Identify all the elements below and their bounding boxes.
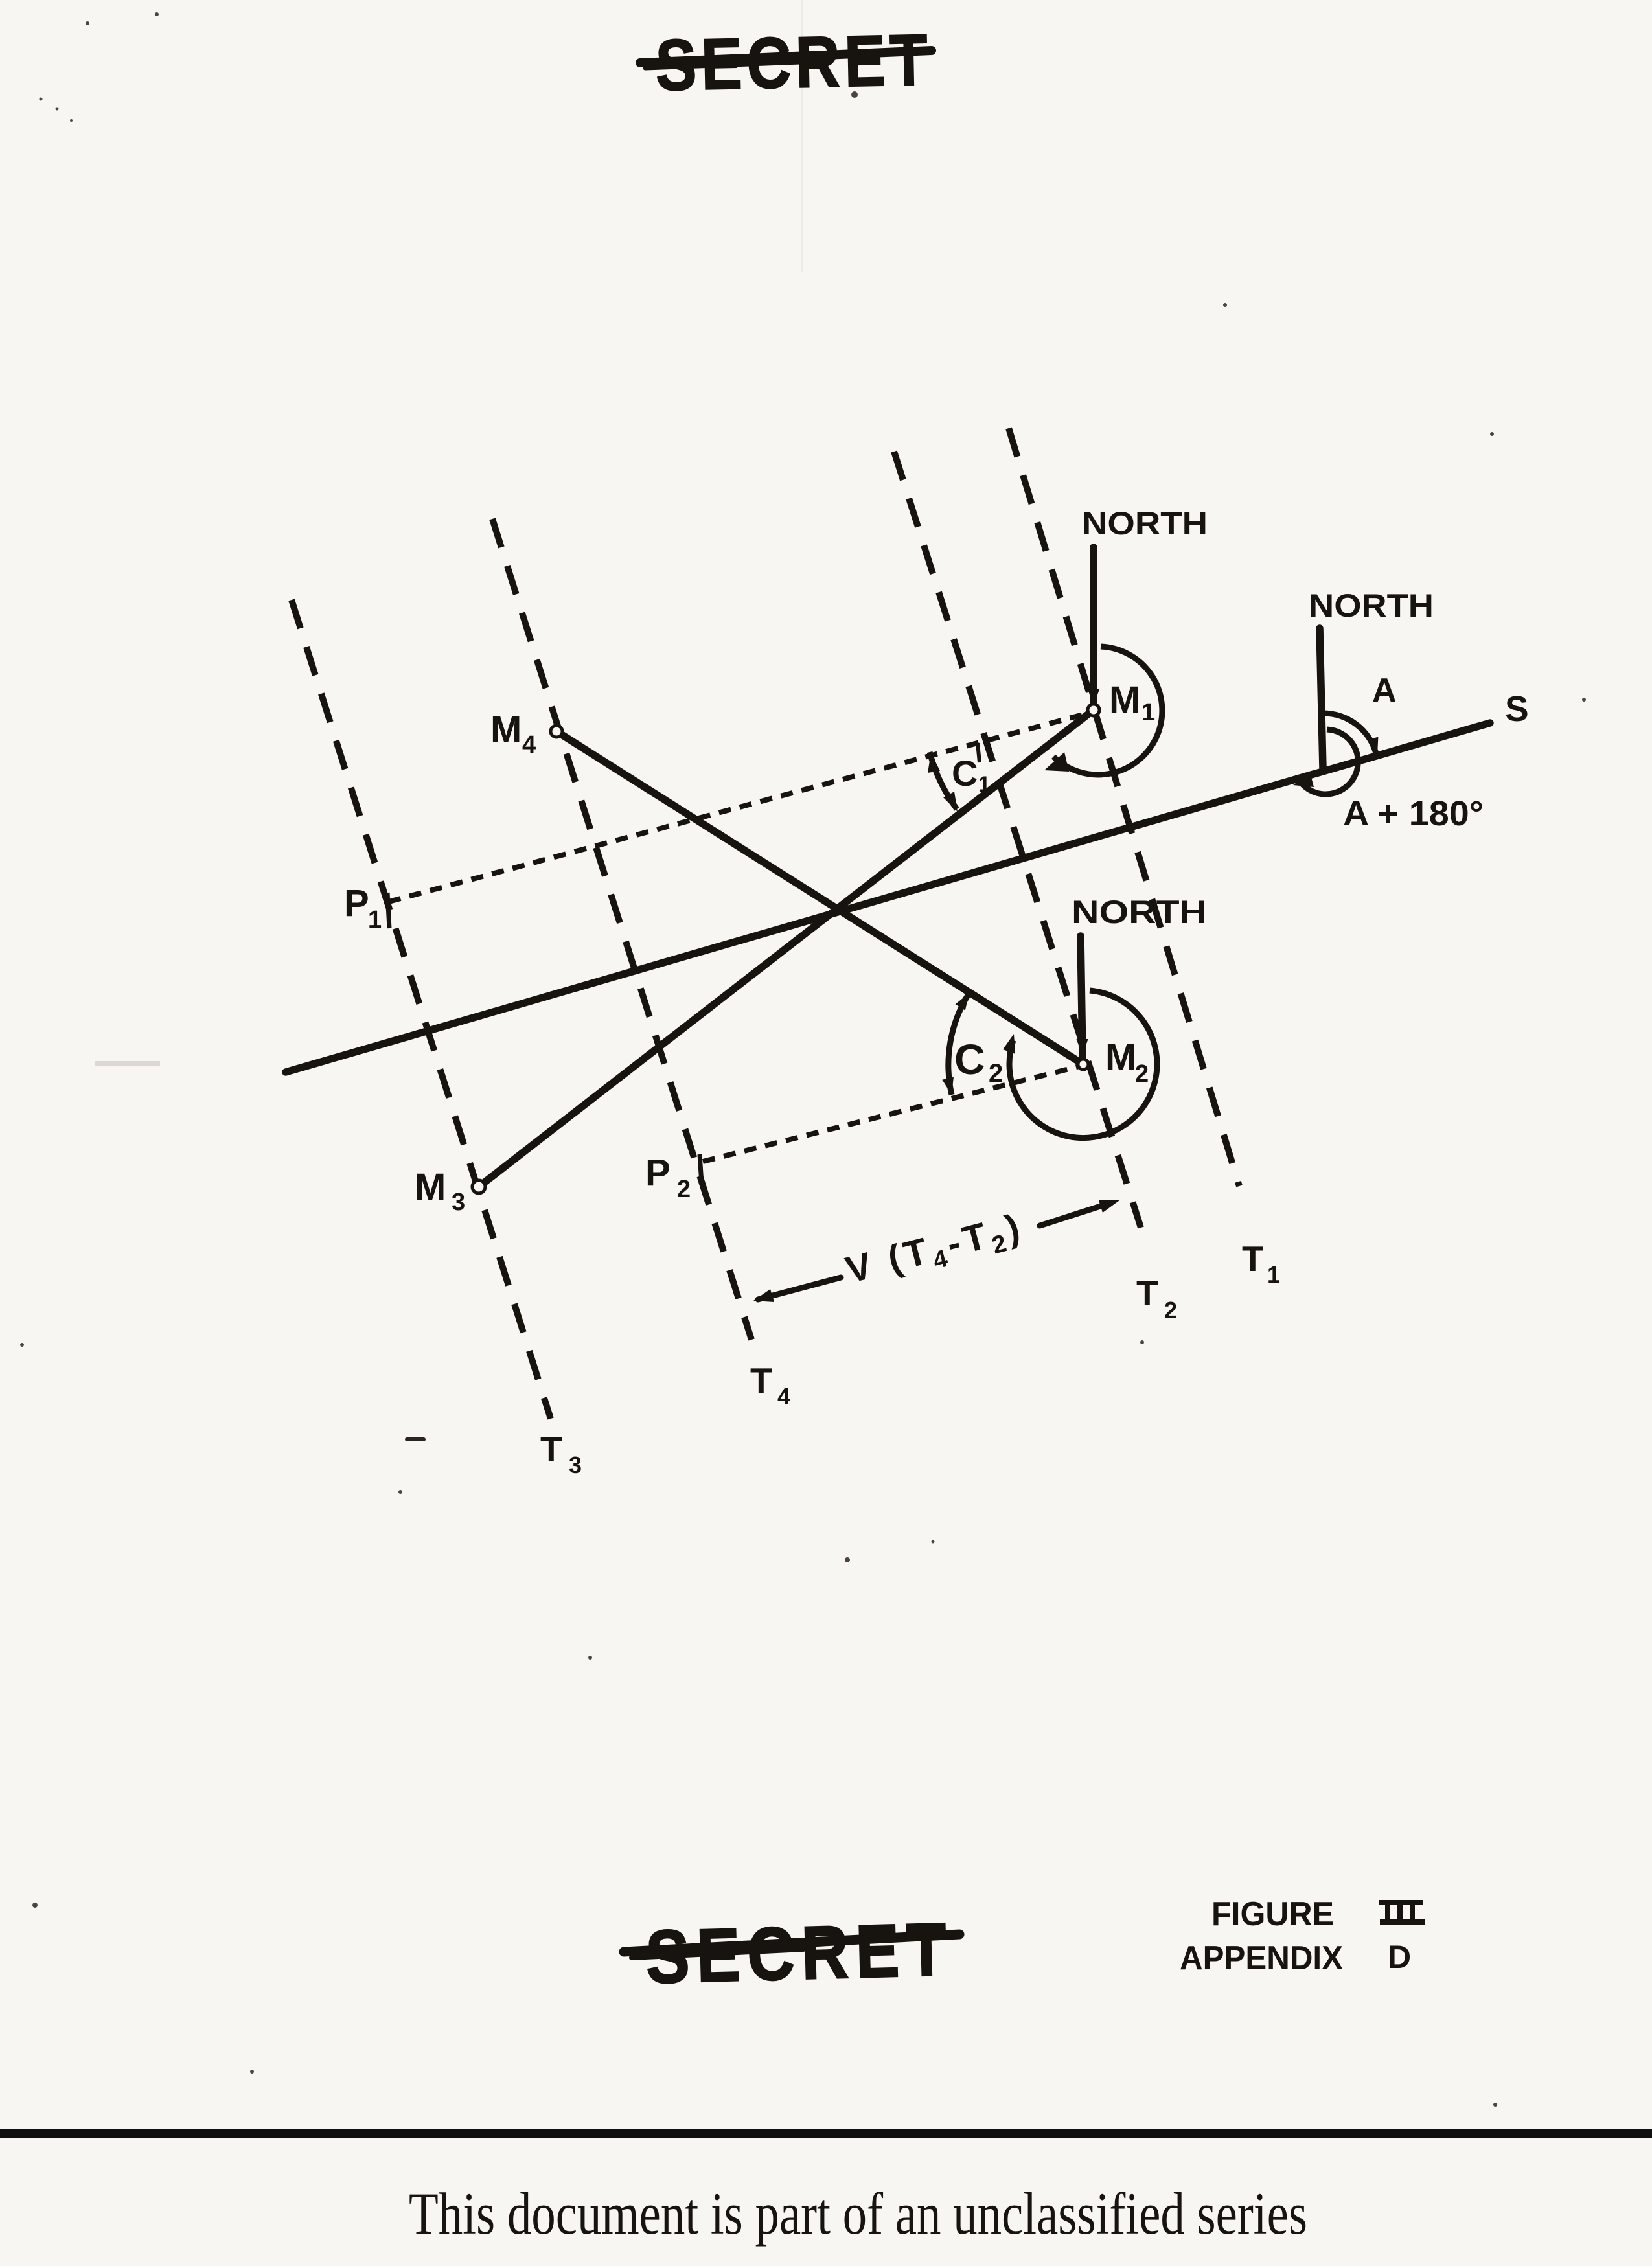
svg-text:D: D xyxy=(1388,1939,1411,1975)
svg-text:4: 4 xyxy=(777,1383,790,1410)
svg-text:T: T xyxy=(750,1360,772,1401)
svg-text:NORTH: NORTH xyxy=(1309,588,1434,624)
svg-text:1: 1 xyxy=(1141,699,1155,726)
svg-text:A: A xyxy=(1372,672,1397,709)
svg-text:P: P xyxy=(645,1152,671,1194)
svg-text:P: P xyxy=(344,882,369,924)
svg-text:2: 2 xyxy=(677,1176,691,1203)
svg-text:1: 1 xyxy=(978,772,991,797)
svg-text:2: 2 xyxy=(1164,1297,1177,1323)
svg-text:3: 3 xyxy=(569,1452,582,1478)
svg-text:T: T xyxy=(1136,1273,1158,1313)
svg-text:4: 4 xyxy=(522,731,536,759)
svg-text:1: 1 xyxy=(368,906,382,933)
svg-text:C: C xyxy=(954,1035,985,1083)
svg-text:2: 2 xyxy=(989,1059,1003,1088)
svg-text:FIGURE: FIGURE xyxy=(1211,1895,1334,1933)
svg-text:3: 3 xyxy=(452,1189,465,1216)
svg-text:T: T xyxy=(1242,1239,1264,1279)
svg-text:This document is part of an un: This document is part of an unclassified… xyxy=(409,2180,1307,2247)
svg-text:M: M xyxy=(415,1166,446,1208)
svg-text:M: M xyxy=(1105,1036,1136,1079)
svg-text:C: C xyxy=(952,753,978,794)
svg-text:M: M xyxy=(1109,679,1140,721)
svg-text:2: 2 xyxy=(1135,1060,1149,1088)
svg-text:A + 180°: A + 180° xyxy=(1343,794,1484,833)
svg-text:S: S xyxy=(1505,689,1529,729)
svg-text:APPENDIX: APPENDIX xyxy=(1180,1940,1343,1977)
svg-text:NORTH: NORTH xyxy=(1072,894,1207,930)
svg-text:T: T xyxy=(540,1429,562,1469)
svg-text:NORTH: NORTH xyxy=(1082,505,1208,542)
svg-text:M: M xyxy=(490,709,522,751)
svg-text:1: 1 xyxy=(1267,1261,1280,1288)
